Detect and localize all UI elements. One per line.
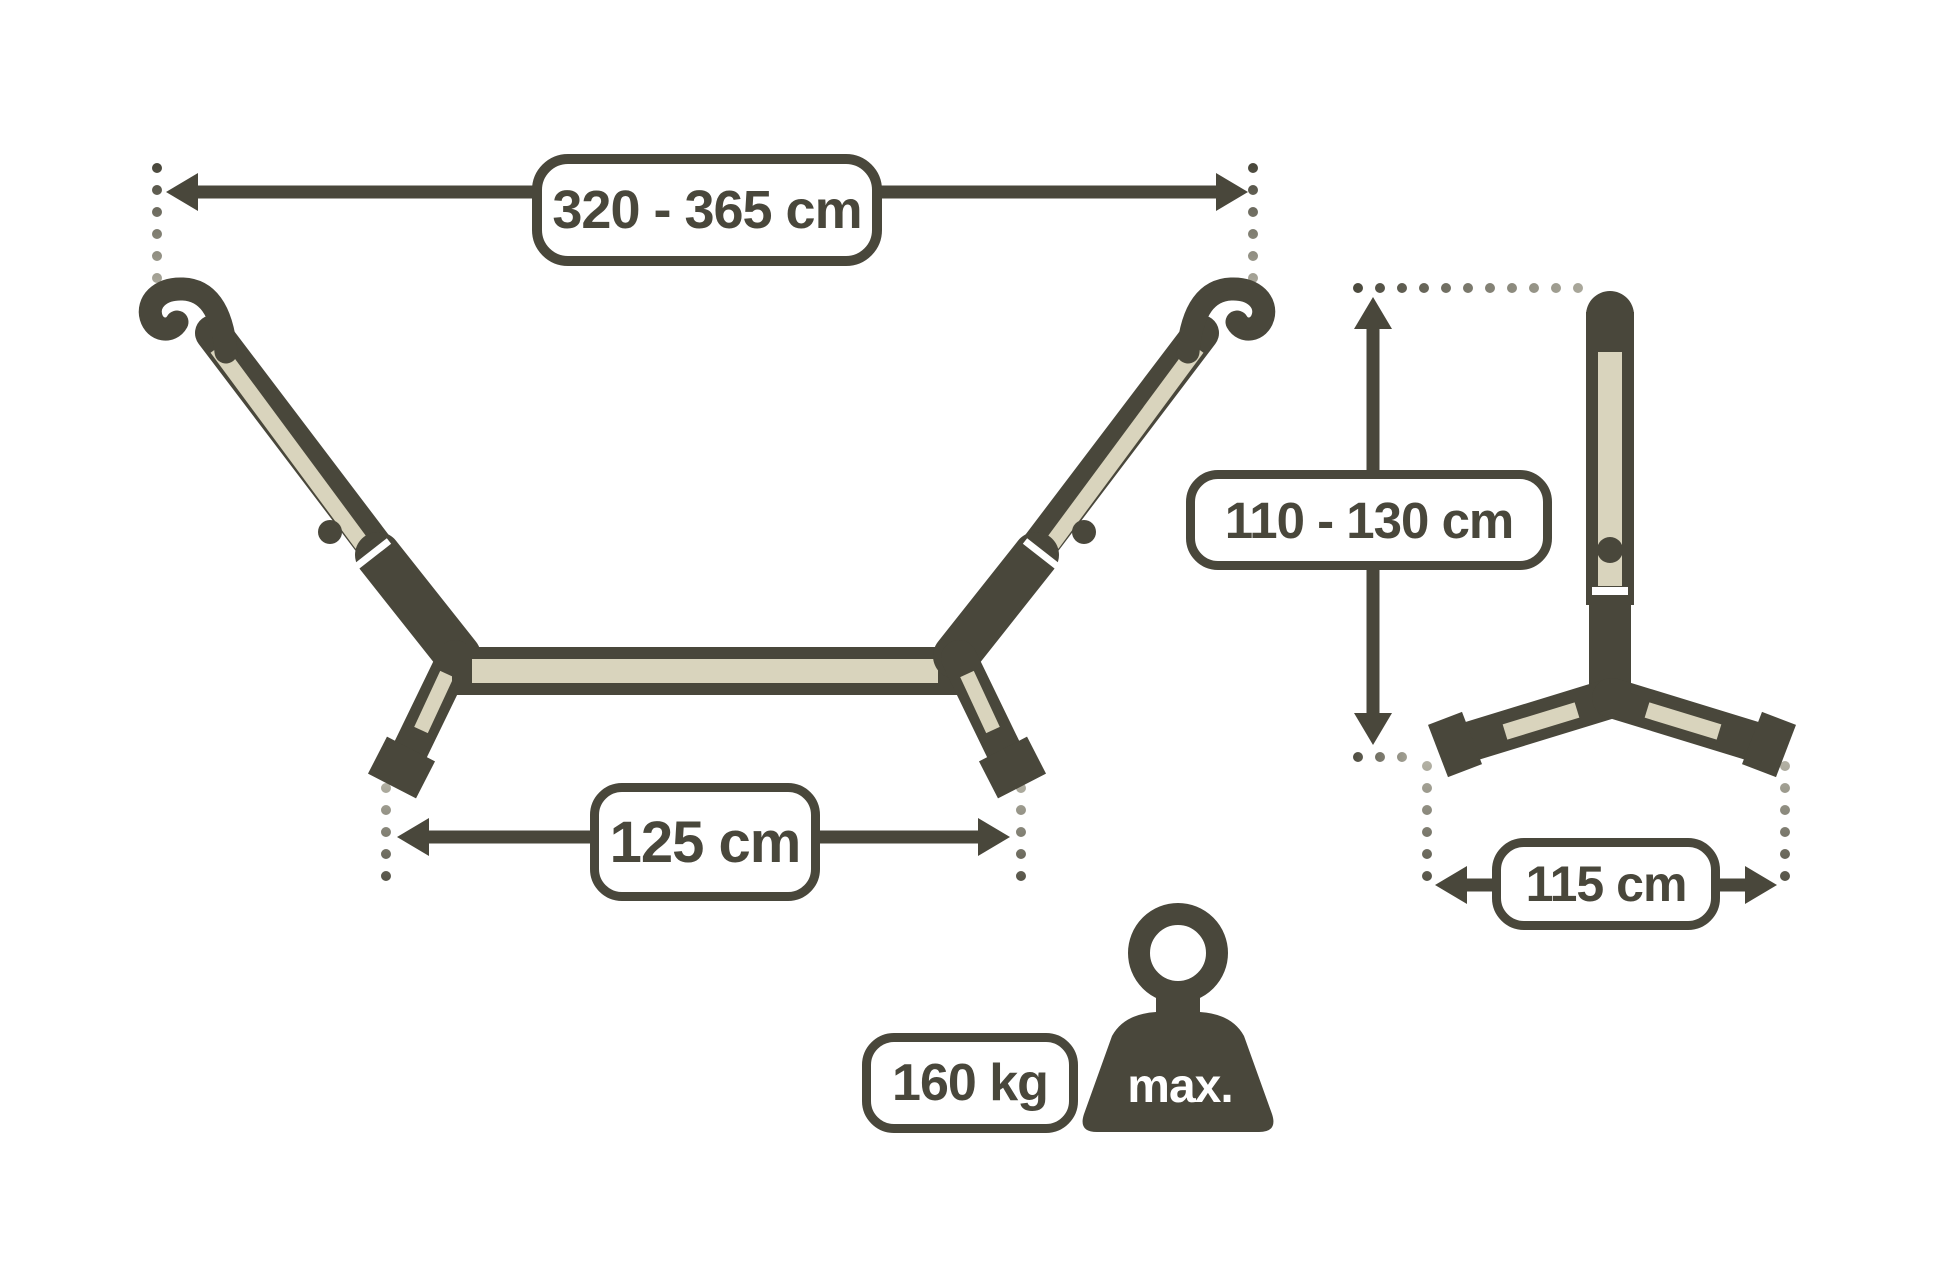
front-right-outer-tube — [956, 555, 1036, 656]
max-load-label: 160 kg — [862, 1033, 1078, 1133]
left-hook-icon — [150, 289, 226, 352]
side-base-depth-label: 115 cm — [1492, 838, 1720, 930]
side-pole-tube-gap — [1592, 587, 1628, 595]
front-right-foot — [1003, 749, 1022, 786]
arrowhead-right-icon — [1745, 866, 1777, 904]
arrowhead-right-icon — [1216, 173, 1248, 211]
arrowhead-up-icon — [1354, 297, 1392, 329]
side-pole-bolt — [1597, 537, 1623, 563]
front-left-foot — [392, 749, 411, 786]
front-base-width-label: 125 cm — [590, 783, 820, 901]
arrowhead-down-icon — [1354, 713, 1392, 745]
front-left-arm-insert — [217, 348, 362, 544]
side-right-foot — [1752, 738, 1786, 751]
overall-length-label: 320 - 365 cm — [532, 154, 882, 266]
arrowhead-right-icon — [978, 818, 1010, 856]
arrowhead-left-icon — [166, 173, 198, 211]
stand-height-label: 110 - 130 cm — [1186, 470, 1552, 570]
arrowhead-left-icon — [397, 818, 429, 856]
hammock-stand-front-view — [150, 289, 1264, 786]
hammock-stand-dimension-diagram: 320 - 365 cm 125 cm 110 - 130 cm 115 cm … — [0, 0, 1946, 1268]
max-load-marker: max. — [1106, 1058, 1254, 1114]
front-left-outer-tube — [378, 555, 458, 656]
front-right-adjustment-knob — [1072, 520, 1096, 544]
arrowhead-left-icon — [1435, 866, 1467, 904]
front-right-arm-insert — [1052, 348, 1197, 544]
right-hook-icon — [1188, 289, 1264, 352]
front-left-adjustment-knob — [318, 520, 342, 544]
weight-ring-icon — [1139, 914, 1217, 992]
side-left-foot — [1438, 738, 1472, 751]
